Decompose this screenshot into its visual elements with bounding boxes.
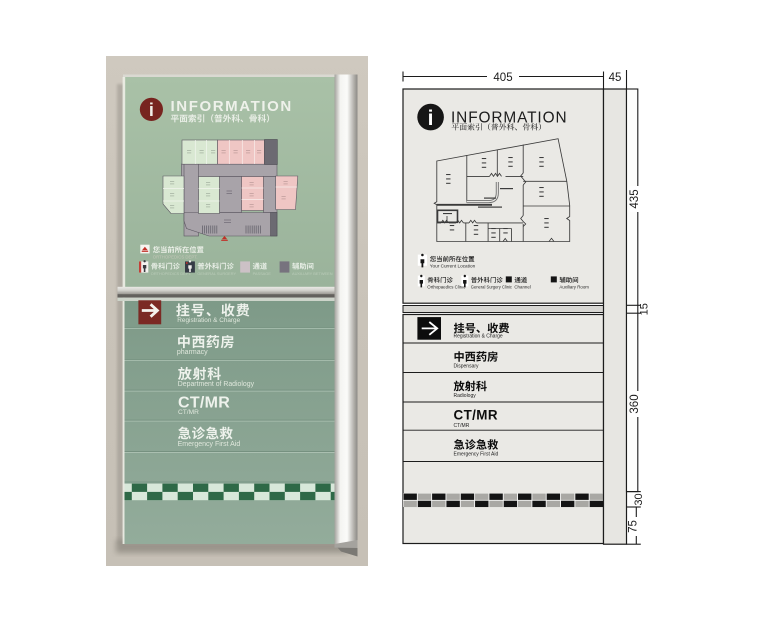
svg-text:General Surgery Clinic: General Surgery Clinic <box>471 284 512 289</box>
svg-text:Radiology: Radiology <box>454 393 477 399</box>
svg-text:Emergency First Aid: Emergency First Aid <box>454 452 499 458</box>
svg-text:Emergency First Aid: Emergency First Aid <box>178 441 241 448</box>
svg-text:AUXILIARY BETWEEN: AUXILIARY BETWEEN <box>292 271 333 276</box>
svg-text:Orthopaedics Clinic: Orthopaedics Clinic <box>427 284 466 289</box>
svg-text:435: 435 <box>629 189 641 208</box>
svg-text:CT/MR: CT/MR <box>454 423 470 429</box>
svg-text:Department of Radiology: Department of Radiology <box>178 381 255 388</box>
svg-text:360: 360 <box>629 394 641 413</box>
svg-text:Channel: Channel <box>514 284 530 289</box>
svg-text:15: 15 <box>639 303 651 315</box>
svg-text:45: 45 <box>609 72 622 84</box>
svg-text:pharmacy: pharmacy <box>177 349 208 356</box>
svg-text:PASSAGE: PASSAGE <box>253 271 272 276</box>
svg-text:CT/MR: CT/MR <box>454 407 498 422</box>
svg-text:i: i <box>149 100 154 120</box>
svg-text:GENERAL SURGERY: GENERAL SURGERY <box>197 271 236 276</box>
svg-text:30: 30 <box>633 493 645 505</box>
svg-text:ORTHOPEDICS DEPT.: ORTHOPEDICS DEPT. <box>153 255 198 260</box>
svg-text:INFORMATION: INFORMATION <box>171 98 293 115</box>
svg-text:i: i <box>428 107 434 130</box>
svg-text:CT/MR: CT/MR <box>178 409 199 416</box>
svg-text:75: 75 <box>628 520 640 533</box>
svg-text:Registration & Charge: Registration & Charge <box>454 334 503 340</box>
svg-text:405: 405 <box>493 72 512 84</box>
svg-text:Dispensary: Dispensary <box>454 363 480 369</box>
svg-text:Registration & Charge: Registration & Charge <box>177 317 240 324</box>
svg-text:Your Current Location: Your Current Location <box>430 264 476 269</box>
svg-text:Auxiliary Room: Auxiliary Room <box>559 284 589 289</box>
